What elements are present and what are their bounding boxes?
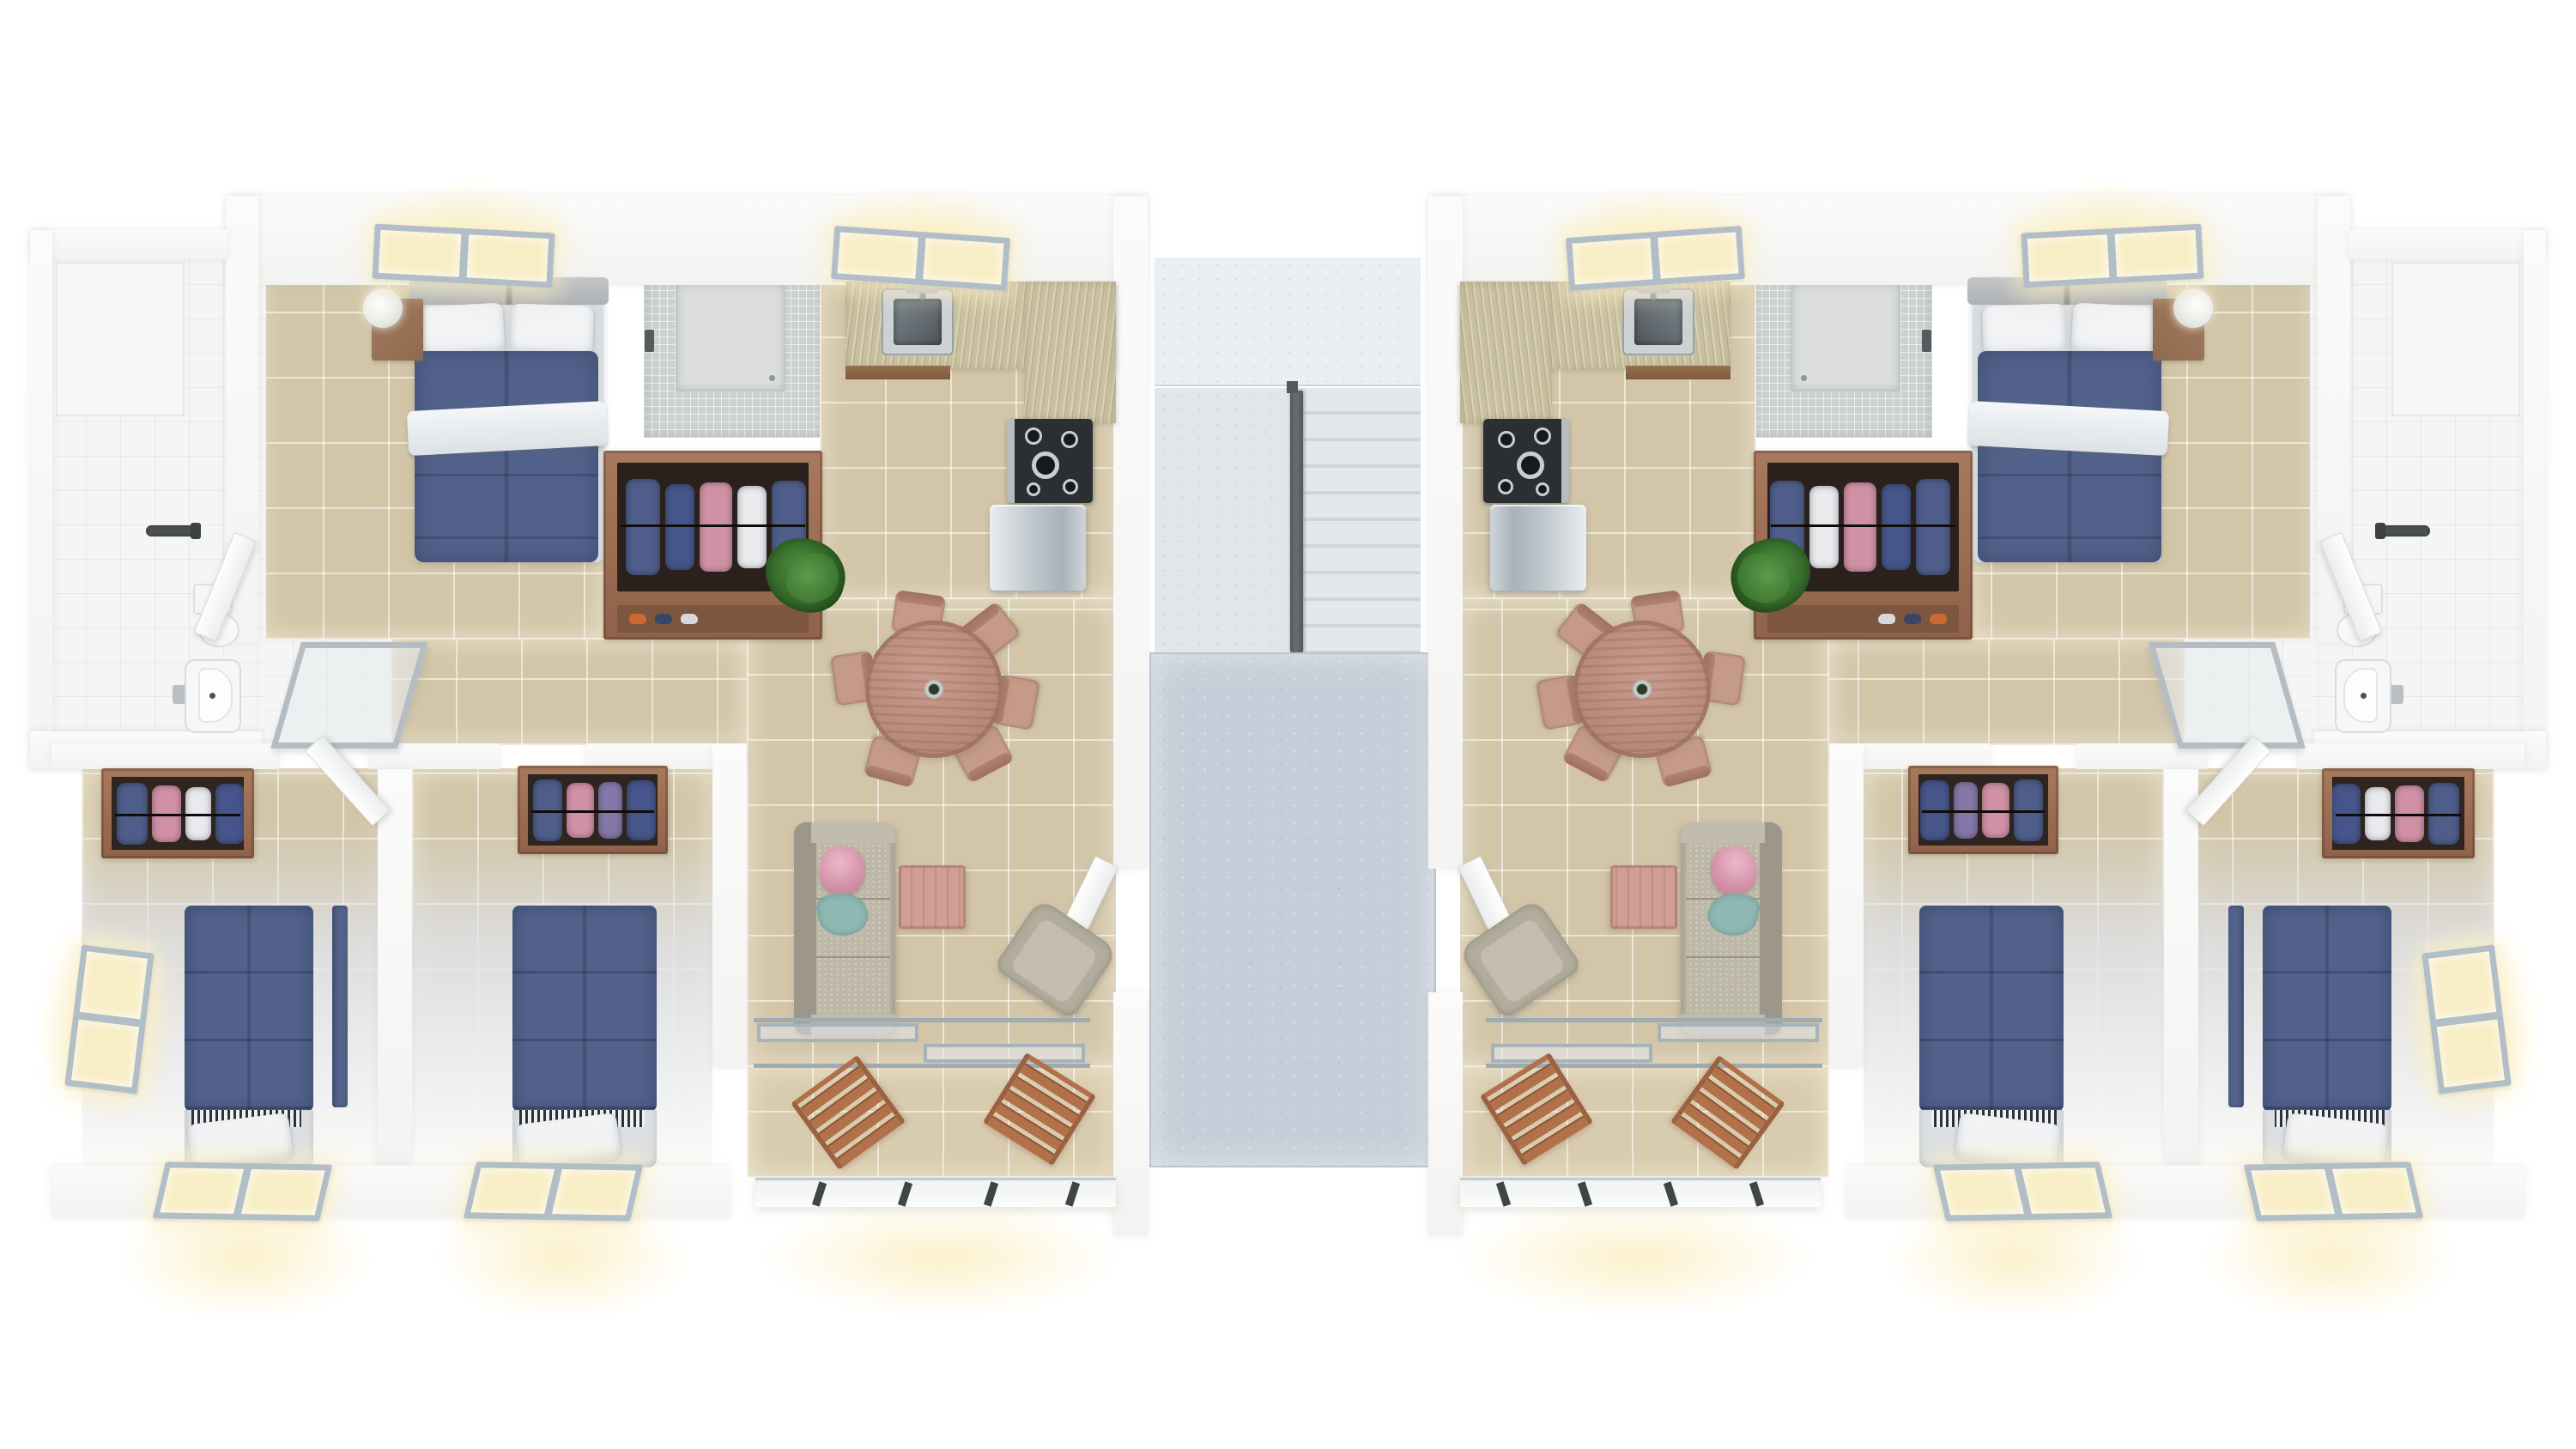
shower-tray (676, 282, 785, 391)
sofa-armrest (1681, 822, 1765, 843)
wall (1428, 196, 1463, 869)
single-bed-partial (2228, 906, 2244, 1107)
wall (2297, 743, 2524, 769)
railing-post (1578, 1181, 1592, 1206)
burner-icon (1534, 427, 1551, 445)
window-pane (2332, 1167, 2416, 1213)
kitchen-sink (882, 288, 954, 355)
window-pane (71, 1020, 139, 1088)
shoes (655, 614, 672, 624)
window-pane (466, 234, 549, 282)
wall (2164, 769, 2198, 1166)
bedroom-a-closet (101, 768, 254, 858)
duvet (1978, 351, 2161, 562)
burner-icon (1063, 479, 1078, 494)
window-lit (153, 1161, 332, 1221)
garment (665, 484, 694, 570)
wall (1829, 743, 1864, 1068)
wall (30, 230, 52, 769)
window-pane (2021, 1167, 2106, 1213)
shower-head-icon (146, 525, 196, 537)
garment (1882, 484, 1911, 570)
shower-tray (1791, 282, 1900, 391)
window-pane (2251, 1169, 2335, 1215)
table-lamp (363, 288, 403, 328)
window-pane (379, 230, 461, 277)
clothes-rail (1771, 524, 1955, 527)
bedroom-b-closet (518, 766, 668, 854)
wall (52, 743, 279, 769)
shoes (681, 614, 698, 624)
single-bed (1919, 906, 2064, 1167)
window-pane (838, 232, 918, 278)
clothes-rail (531, 810, 654, 813)
burner-icon (1061, 431, 1078, 448)
shoes (1878, 614, 1895, 624)
duvet (1919, 906, 2064, 1112)
window-pane (552, 1169, 636, 1215)
hallway-floor (391, 640, 747, 745)
faucet-icon (1638, 286, 1670, 294)
shoes (1904, 614, 1921, 624)
window-lit (372, 224, 555, 288)
pillow (420, 303, 505, 359)
stair-upper-landing (1155, 258, 1421, 386)
shoe-shelf (617, 605, 809, 633)
railing-post (1749, 1181, 1764, 1206)
single-bed (185, 906, 313, 1167)
burner-icon (1025, 427, 1042, 445)
counter-front-edge (1626, 366, 1730, 379)
railing-post (1496, 1181, 1511, 1206)
garment (737, 486, 767, 568)
wall (30, 230, 227, 259)
staircase-steps (1296, 388, 1421, 652)
kitchen-counter (1460, 282, 1552, 423)
stair-lower-landing (1155, 388, 1296, 652)
wall (2524, 230, 2546, 769)
apartment-unit-left (30, 120, 1146, 1275)
sofa-back (1760, 822, 1782, 1035)
garment (700, 482, 732, 572)
burner-icon (1032, 452, 1059, 479)
kitchen-counter (1024, 282, 1116, 423)
window-lit (2021, 224, 2203, 288)
glass-panel (924, 1044, 1085, 1063)
gas-stove (1483, 419, 1569, 503)
wall (1113, 196, 1148, 869)
single-bed-partial (332, 906, 348, 1107)
burner-icon (1027, 482, 1040, 496)
sink-basin (1634, 299, 1682, 345)
garment (1809, 486, 1839, 568)
window-pane (241, 1169, 325, 1215)
bathroom-sink (2335, 659, 2391, 733)
garment (1844, 482, 1876, 572)
duvet (2263, 906, 2391, 1112)
coffee-table (1610, 865, 1677, 929)
glass-panel (1491, 1044, 1652, 1063)
garment (626, 479, 660, 575)
shower-valve-icon (1922, 330, 1931, 352)
coffee-table (899, 865, 966, 929)
wall (712, 743, 747, 1068)
railing-post (1065, 1181, 1080, 1206)
clothes-rail (621, 524, 805, 527)
railing-post (984, 1181, 998, 1206)
burner-icon (1536, 482, 1549, 496)
shoes (1930, 614, 1947, 624)
duvet (185, 906, 313, 1112)
wall (2349, 230, 2546, 259)
shower-head-icon (2380, 525, 2430, 537)
window-pane (2115, 230, 2197, 277)
sink-basin (894, 299, 942, 345)
bathroom-sink (185, 659, 241, 733)
pillow (2070, 303, 2155, 359)
railing-post (898, 1181, 912, 1206)
window-pane (160, 1167, 244, 1213)
burner-icon (1498, 431, 1515, 448)
wall (1113, 992, 1148, 1236)
window-pane (1573, 238, 1653, 284)
burner-icon (1517, 452, 1544, 479)
glass-panel (1658, 1023, 1819, 1042)
stair-railing (1290, 391, 1303, 652)
door-track (754, 1018, 1090, 1022)
railing-post (1664, 1181, 1678, 1206)
shower-valve-icon (645, 330, 654, 352)
balcony-railing (755, 1178, 1116, 1207)
duvet (415, 351, 598, 562)
railing-post (812, 1181, 827, 1206)
window-pane (2428, 951, 2496, 1019)
sink-faucet (2390, 685, 2403, 704)
table-lamp (2173, 288, 2213, 328)
shower-area (2391, 262, 2520, 416)
dining-table (1573, 621, 1711, 758)
sofa-back (794, 822, 816, 1035)
window-pane (1658, 232, 1738, 278)
shower-area (56, 262, 185, 416)
bedroom-b-closet (1908, 766, 2058, 854)
window-glow (760, 1197, 1120, 1318)
wall (378, 769, 412, 1166)
balcony-railing (1460, 1178, 1821, 1207)
gas-stove (1007, 419, 1093, 503)
clothes-rail (1922, 810, 2045, 813)
bedroom-a-closet (2322, 768, 2475, 858)
sofa-armrest (811, 822, 895, 843)
wall (1428, 992, 1463, 1236)
counter-front-edge (846, 366, 950, 379)
kitchen-sink (1622, 288, 1694, 355)
shoe-shelf (1767, 605, 1959, 633)
window-lit (1933, 1161, 2112, 1221)
refrigerator (990, 505, 1086, 591)
window-pane (2437, 1020, 2505, 1088)
door-track (1486, 1018, 1822, 1022)
dining-table (865, 621, 1003, 758)
shoes (629, 614, 646, 624)
apartment-unit-right (1430, 120, 2546, 1275)
window-pane (2027, 234, 2110, 282)
duvet (512, 906, 657, 1112)
window-glow (1456, 1197, 1816, 1318)
glass-panel (757, 1023, 918, 1042)
hallway-floor (1829, 640, 2185, 745)
faucet-icon (906, 286, 938, 294)
entry-landing-slab (1149, 652, 1436, 1167)
pillow (510, 303, 594, 357)
window-pane (923, 238, 1003, 284)
window-lit (464, 1161, 643, 1221)
stair-core (1137, 120, 1438, 1275)
floor-plan-render (0, 0, 2576, 1449)
window-lit (2244, 1161, 2423, 1221)
refrigerator (1490, 505, 1586, 591)
garment (1916, 479, 1950, 575)
single-bed (512, 906, 657, 1167)
clothes-rail (115, 814, 240, 816)
double-bed (415, 279, 603, 562)
pillow (1982, 303, 2066, 357)
window-pane (1940, 1169, 2024, 1215)
window-pane (470, 1167, 555, 1213)
window-pane (80, 951, 148, 1019)
single-bed (2263, 906, 2391, 1167)
double-bed (1973, 279, 2161, 562)
burner-icon (1498, 479, 1513, 494)
clothes-rail (2336, 814, 2461, 816)
